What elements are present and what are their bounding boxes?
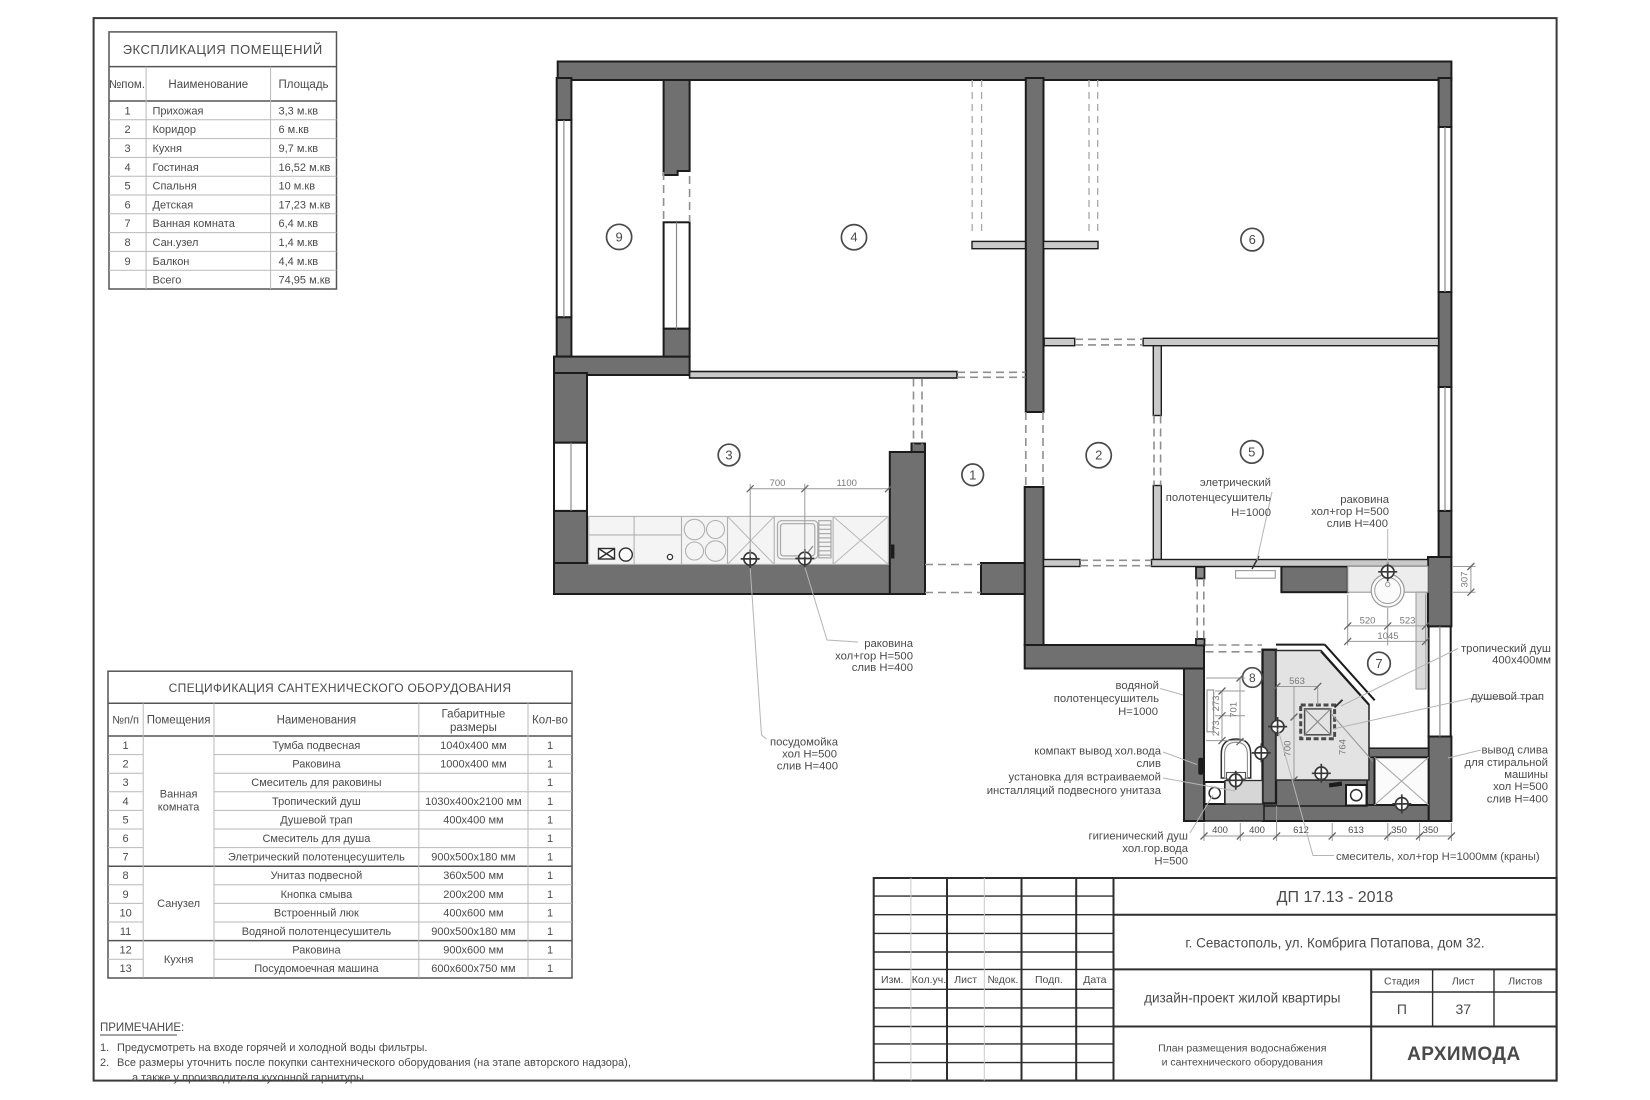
svg-text:360х500 мм: 360х500 мм (443, 870, 503, 882)
svg-text:Н=500: Н=500 (1154, 856, 1188, 868)
svg-text:1: 1 (547, 833, 553, 845)
svg-text:3: 3 (123, 777, 129, 789)
svg-text:900х500х180 мм: 900х500х180 мм (431, 852, 515, 864)
svg-text:посудомойка: посудомойка (770, 737, 839, 749)
svg-text:1000х400 мм: 1000х400 мм (440, 759, 507, 771)
svg-text:200х200 мм: 200х200 мм (443, 889, 503, 901)
svg-text:Н=1000: Н=1000 (1231, 507, 1271, 519)
svg-text:1: 1 (547, 963, 553, 975)
svg-text:Спальня: Спальня (153, 181, 197, 193)
svg-text:2: 2 (123, 759, 129, 771)
svg-text:10 м.кв: 10 м.кв (279, 181, 316, 193)
svg-text:слив Н=400: слив Н=400 (852, 662, 913, 674)
svg-text:Гостиная: Гостиная (153, 162, 199, 174)
svg-text:Наименование: Наименование (168, 79, 248, 91)
svg-text:400х600 мм: 400х600 мм (443, 907, 503, 919)
svg-text:инсталляций подвесного унитаза: инсталляций подвесного унитаза (987, 785, 1162, 797)
svg-text:Тропический душ: Тропический душ (272, 796, 361, 808)
svg-text:Стадия: Стадия (1384, 976, 1420, 988)
svg-text:7: 7 (1375, 656, 1382, 671)
svg-text:хол.гор.вода: хол.гор.вода (1122, 843, 1188, 855)
svg-text:слив: слив (1136, 758, 1161, 770)
svg-text:Балкон: Балкон (153, 256, 190, 268)
svg-text:Ванная: Ванная (160, 789, 198, 801)
svg-text:9: 9 (124, 256, 130, 268)
svg-text:350: 350 (1423, 825, 1439, 836)
svg-text:слив Н=400: слив Н=400 (1487, 794, 1548, 806)
svg-text:307: 307 (1460, 572, 1471, 588)
svg-text:600х600х750 мм: 600х600х750 мм (431, 963, 515, 975)
svg-text:563: 563 (1289, 676, 1305, 687)
svg-text:1: 1 (124, 105, 130, 117)
svg-text:6: 6 (123, 833, 129, 845)
svg-text:гигиенический душ: гигиенический душ (1088, 831, 1188, 843)
svg-text:П: П (1397, 1001, 1407, 1017)
svg-text:Кухня: Кухня (164, 954, 193, 966)
svg-text:1: 1 (547, 740, 553, 752)
svg-text:700: 700 (1283, 741, 1294, 757)
svg-text:1: 1 (547, 945, 553, 957)
svg-text:1045: 1045 (1377, 631, 1398, 642)
svg-text:2.: 2. (100, 1057, 109, 1069)
svg-text:Душевой трап: Душевой трап (280, 814, 352, 826)
svg-text:для стиральной: для стиральной (1465, 757, 1548, 769)
svg-text:Н=1000: Н=1000 (1118, 706, 1158, 718)
svg-text:764: 764 (1338, 739, 1349, 755)
svg-text:1: 1 (547, 870, 553, 882)
svg-text:1: 1 (547, 814, 553, 826)
svg-text:ДП 17.13 - 2018: ДП 17.13 - 2018 (1277, 889, 1394, 906)
svg-text:6: 6 (1249, 232, 1256, 247)
svg-text:1: 1 (547, 759, 553, 771)
svg-text:1.: 1. (100, 1042, 109, 1054)
svg-text:700: 700 (770, 478, 786, 489)
svg-text:Предусмотреть на входе горячей: Предусмотреть на входе горячей и холодно… (117, 1042, 427, 1054)
svg-text:900х500х180 мм: 900х500х180 мм (431, 926, 515, 938)
svg-text:Коридор: Коридор (153, 124, 196, 136)
svg-text:520: 520 (1360, 615, 1376, 626)
svg-text:1: 1 (547, 796, 553, 808)
svg-text:Лист: Лист (1452, 976, 1475, 988)
svg-text:Раковина: Раковина (292, 945, 341, 957)
svg-text:1: 1 (547, 852, 553, 864)
svg-text:613: 613 (1348, 825, 1364, 836)
svg-text:№док.: №док. (988, 974, 1019, 986)
svg-text:6 м.кв: 6 м.кв (279, 124, 310, 136)
svg-text:Сан.узел: Сан.узел (153, 237, 199, 249)
svg-text:Посудомоечная машина: Посудомоечная машина (254, 963, 379, 975)
svg-text:машины: машины (1504, 769, 1548, 781)
svg-text:хол+гор Н=500: хол+гор Н=500 (835, 651, 913, 663)
svg-text:Изм.: Изм. (881, 974, 904, 986)
svg-text:полотенцесушитель: полотенцесушитель (1166, 492, 1271, 504)
svg-text:Наименования: Наименования (277, 715, 357, 727)
svg-text:1: 1 (969, 467, 976, 482)
svg-text:400: 400 (1249, 825, 1265, 836)
svg-text:установка для встраиваемой: установка для встраиваемой (1009, 772, 1161, 784)
svg-text:№пом.: №пом. (109, 79, 145, 91)
svg-text:2: 2 (1095, 448, 1102, 463)
svg-text:тропический душ: тропический душ (1461, 643, 1551, 655)
svg-text:523: 523 (1400, 615, 1416, 626)
svg-text:8: 8 (1249, 671, 1256, 685)
svg-text:9: 9 (123, 889, 129, 901)
svg-text:Встроенный люк: Встроенный люк (274, 907, 359, 919)
svg-text:37: 37 (1456, 1001, 1472, 1017)
svg-text:7: 7 (124, 218, 130, 230)
svg-text:Смеситель для раковины: Смеситель для раковины (251, 777, 381, 789)
svg-text:хол Н=500: хол Н=500 (1493, 781, 1548, 793)
svg-text:1,4 м.кв: 1,4 м.кв (279, 237, 319, 249)
svg-text:5: 5 (123, 814, 129, 826)
svg-text:АРХИМОДА: АРХИМОДА (1407, 1044, 1521, 1065)
svg-text:Дата: Дата (1083, 974, 1106, 986)
svg-text:размеры: размеры (450, 722, 497, 734)
svg-text:5: 5 (124, 181, 130, 193)
svg-text:ЭКСПЛИКАЦИЯ ПОМЕЩЕНИЙ: ЭКСПЛИКАЦИЯ ПОМЕЩЕНИЙ (123, 42, 323, 57)
svg-text:1040х400 мм: 1040х400 мм (440, 740, 507, 752)
svg-text:Детская: Детская (153, 199, 194, 211)
svg-text:350: 350 (1391, 825, 1407, 836)
svg-text:комната: комната (158, 802, 200, 814)
svg-text:Водяной полотенцесушитель: Водяной полотенцесушитель (242, 926, 392, 938)
svg-text:смеситель, хол+гор Н=1000мм (: смеситель, хол+гор Н=1000мм (краны) (1336, 851, 1540, 863)
svg-text:4,4 м.кв: 4,4 м.кв (279, 256, 319, 268)
svg-text:хол+гор Н=500: хол+гор Н=500 (1311, 506, 1389, 518)
svg-text:1: 1 (547, 926, 553, 938)
svg-text:4: 4 (850, 230, 857, 245)
svg-text:6: 6 (124, 199, 130, 211)
svg-text:элетрический: элетрический (1200, 477, 1271, 489)
svg-text:701: 701 (1229, 702, 1240, 718)
svg-text:Тумба подвесная: Тумба подвесная (272, 740, 360, 752)
svg-text:5: 5 (1248, 444, 1255, 459)
svg-text:400: 400 (1212, 825, 1228, 836)
svg-text:№п/п: №п/п (112, 715, 139, 727)
svg-text:8: 8 (123, 870, 129, 882)
svg-text:9: 9 (615, 229, 622, 244)
svg-text:раковина: раковина (1340, 494, 1389, 506)
svg-text:хол Н=500: хол Н=500 (782, 749, 837, 761)
svg-text:Помещения: Помещения (147, 715, 211, 727)
svg-text:слив Н=400: слив Н=400 (1327, 518, 1388, 530)
svg-text:1100: 1100 (836, 478, 856, 489)
svg-text:273: 273 (1211, 720, 1222, 736)
svg-text:400х400мм: 400х400мм (1492, 655, 1551, 667)
svg-text:полотенцесушитель: полотенцесушитель (1054, 693, 1159, 705)
svg-text:8: 8 (124, 237, 130, 249)
svg-text:Кнопка смыва: Кнопка смыва (281, 889, 353, 901)
svg-text:3,3 м.кв: 3,3 м.кв (279, 105, 319, 117)
svg-text:Кол-во: Кол-во (532, 715, 568, 727)
svg-text:СПЕЦИФИКАЦИЯ САНТЕХНИЧЕСКОГО О: СПЕЦИФИКАЦИЯ САНТЕХНИЧЕСКОГО ОБОРУДОВАНИ… (169, 681, 512, 695)
svg-text:2: 2 (124, 124, 130, 136)
svg-text:3: 3 (124, 143, 130, 155)
svg-text:Всего: Всего (153, 275, 182, 287)
svg-text:г. Севастополь, ул. Комбрига П: г. Севастополь, ул. Комбрига Потапова, д… (1185, 936, 1484, 951)
svg-text:273: 273 (1211, 695, 1222, 711)
svg-text:слив Н=400: слив Н=400 (777, 761, 838, 773)
svg-text:3: 3 (725, 448, 732, 463)
svg-text:74,95 м.кв: 74,95 м.кв (279, 275, 331, 287)
svg-text:Раковина: Раковина (292, 759, 341, 771)
svg-text:1: 1 (547, 777, 553, 789)
svg-text:душевой трап: душевой трап (1471, 691, 1544, 703)
svg-text:компакт вывод хол.вода: компакт вывод хол.вода (1034, 746, 1161, 758)
svg-text:Смеситель для душа: Смеситель для душа (262, 833, 371, 845)
svg-text:Все размеры уточнить после пок: Все размеры уточнить после покупки санте… (117, 1057, 631, 1069)
svg-text:План размещения водоснабжения: План размещения водоснабжения (1158, 1043, 1326, 1055)
svg-text:Подп.: Подп. (1035, 974, 1063, 986)
svg-text:1: 1 (547, 889, 553, 901)
svg-text:Габаритные: Габаритные (442, 709, 506, 721)
svg-text:раковина: раковина (864, 638, 913, 650)
svg-text:10: 10 (119, 907, 131, 919)
svg-text:400х400 мм: 400х400 мм (443, 814, 503, 826)
svg-text:1: 1 (123, 740, 129, 752)
svg-text:Площадь: Площадь (278, 79, 328, 91)
svg-text:Кол.уч.: Кол.уч. (912, 974, 946, 986)
svg-text:12: 12 (119, 945, 131, 957)
svg-text:водяной: водяной (1116, 680, 1159, 692)
svg-text:17,23 м.кв: 17,23 м.кв (279, 199, 331, 211)
svg-text:Ванная комната: Ванная комната (153, 218, 236, 230)
svg-text:Листов: Листов (1508, 976, 1543, 988)
svg-text:вывод слива: вывод слива (1482, 745, 1549, 757)
svg-text:13: 13 (119, 963, 131, 975)
svg-text:4: 4 (124, 162, 130, 174)
svg-text:дизайн-проект жилой квартиры: дизайн-проект жилой квартиры (1144, 991, 1340, 1006)
svg-text:Унитаз подвесной: Унитаз подвесной (271, 870, 363, 882)
svg-text:6,4 м.кв: 6,4 м.кв (279, 218, 319, 230)
svg-text:4: 4 (123, 796, 129, 808)
svg-text:и сантехнического оборудования: и сантехнического оборудования (1162, 1057, 1323, 1069)
svg-text:Кухня: Кухня (153, 143, 182, 155)
svg-text:Прихожая: Прихожая (153, 105, 204, 117)
svg-text:Элетрический полотенцесушитель: Элетрический полотенцесушитель (228, 852, 405, 864)
svg-text:а также у производителя кухонн: а также у производителя кухонной гарниту… (132, 1072, 367, 1084)
svg-text:9,7 м.кв: 9,7 м.кв (279, 143, 319, 155)
svg-text:Лист: Лист (954, 974, 977, 986)
svg-text:7: 7 (123, 852, 129, 864)
svg-text:ПРИМЕЧАНИЕ:: ПРИМЕЧАНИЕ: (100, 1022, 184, 1034)
svg-text:16,52 м.кв: 16,52 м.кв (279, 162, 331, 174)
svg-text:900х600 мм: 900х600 мм (443, 945, 503, 957)
svg-text:Санузел: Санузел (157, 898, 200, 910)
svg-text:1: 1 (547, 907, 553, 919)
svg-text:11: 11 (120, 926, 131, 938)
svg-text:1030х400х2100 мм: 1030х400х2100 мм (425, 796, 521, 808)
